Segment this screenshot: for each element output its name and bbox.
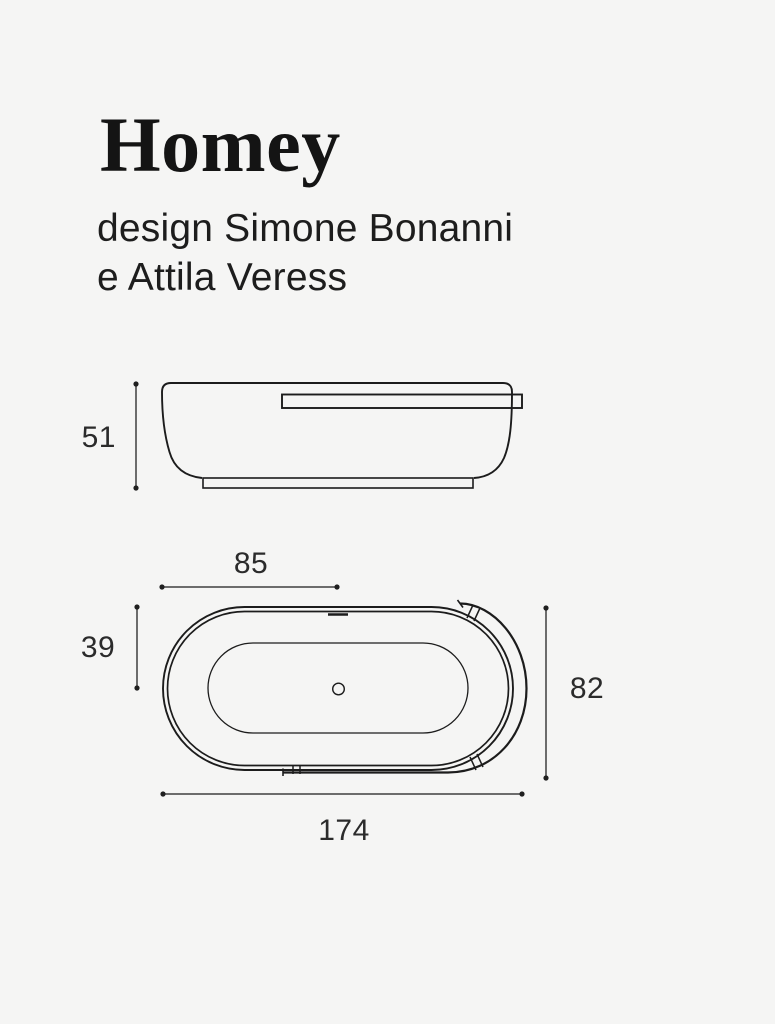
bathtub-top-view: 85 39 82 174 [81, 547, 604, 847]
dimension-width: 82 [543, 605, 604, 780]
rim-outer-line [163, 607, 513, 770]
rim-inner-line [168, 612, 509, 766]
dimension-label-height-side: 51 [82, 421, 116, 454]
dimension-label-width: 82 [570, 672, 604, 705]
dimension-label-overall-length: 174 [318, 814, 370, 847]
dimension-shelf-length: 85 [159, 547, 339, 590]
drain-icon [333, 683, 345, 695]
tub-shelf-side [282, 395, 522, 409]
shelf-plan-outline [283, 600, 527, 776]
dimension-rim-to-center: 39 [81, 604, 140, 690]
dimension-label-rim-to-center: 39 [81, 631, 115, 664]
basin-outline [208, 643, 468, 733]
dimension-height-side: 51 [82, 381, 139, 490]
dimension-overall-length: 174 [160, 791, 524, 847]
technical-drawing: 51 [0, 0, 775, 1024]
dimension-label-shelf-length: 85 [234, 547, 268, 580]
tub-side-outline [162, 383, 512, 478]
tub-base-plinth [203, 478, 473, 488]
spec-sheet-page: Homey design Simone Bonanni e Attila Ver… [0, 0, 775, 1024]
bathtub-side-view: 51 [82, 381, 522, 490]
